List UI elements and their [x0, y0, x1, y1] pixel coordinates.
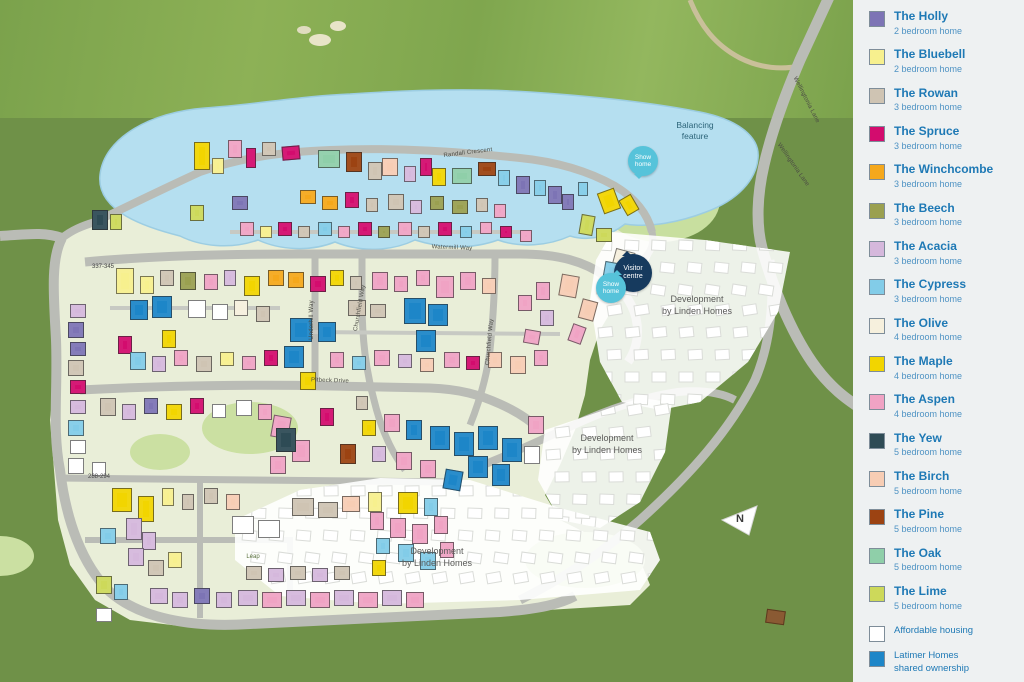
- house-type-bedrooms: 4 bedroom home: [894, 409, 962, 419]
- house-plot: [500, 226, 512, 238]
- legend-item-the-olive: The Olive4 bedroom home: [869, 317, 1016, 355]
- house-plot: [398, 222, 412, 236]
- house-plot: [520, 230, 532, 242]
- house-plot: [432, 168, 446, 186]
- house-type-name: The Rowan: [894, 87, 962, 101]
- house-plot: [150, 588, 168, 604]
- house-plot: [116, 268, 134, 294]
- house-plot: [260, 226, 272, 238]
- house-plot: [262, 142, 276, 156]
- house-type-name: The Pine: [894, 508, 962, 522]
- house-plot: [68, 322, 84, 338]
- house-plot: [330, 270, 344, 286]
- house-plot: [372, 272, 388, 290]
- house-plot: [268, 568, 284, 582]
- development-label-2: Development by Linden Homes: [572, 432, 642, 456]
- legend-swatch: [869, 241, 885, 257]
- house-plot: [356, 396, 368, 410]
- house-plot: [510, 356, 526, 374]
- house-type-name: The Maple: [894, 355, 962, 369]
- house-plot: [196, 356, 212, 372]
- legend-swatch: [869, 126, 885, 142]
- legend-item-the-spruce: The Spruce3 bedroom home: [869, 125, 1016, 163]
- house-plot: [518, 295, 532, 311]
- house-plot: [162, 488, 174, 506]
- house-plot: [112, 488, 132, 512]
- house-plot: [174, 350, 188, 366]
- house-plot: [420, 460, 436, 478]
- house-plot: [366, 198, 378, 212]
- house-plot: [428, 304, 448, 326]
- house-plot: [478, 426, 498, 450]
- house-type-name: The Yew: [894, 432, 962, 446]
- house-plot: [412, 524, 428, 544]
- house-type-bedrooms: 5 bedroom home: [894, 524, 962, 534]
- plot-range-label-bottom: 288-294: [88, 474, 110, 480]
- house-plot: [536, 282, 550, 300]
- street-label-pitbeck-drive: Pitbeck Drive: [311, 377, 349, 384]
- house-plot: [410, 200, 422, 214]
- house-plot: [144, 398, 158, 414]
- house-type-name: The Bluebell: [894, 48, 965, 62]
- leap-label: Leap: [246, 554, 259, 560]
- house-plot: [70, 380, 86, 394]
- legend-swatch: [869, 279, 885, 295]
- house-plot: [70, 342, 86, 356]
- house-plot: [340, 444, 356, 464]
- house-plot: [370, 512, 384, 530]
- house-plot: [372, 560, 386, 576]
- house-plot: [70, 304, 86, 318]
- house-plot: [298, 226, 310, 238]
- house-plot: [548, 186, 562, 204]
- legend-item-the-holly: The Holly2 bedroom home: [869, 10, 1016, 48]
- house-plot: [372, 446, 386, 462]
- house-plot: [96, 608, 112, 622]
- house-plot: [142, 532, 156, 550]
- house-plot: [418, 226, 430, 238]
- legend-panel: The Holly2 bedroom homeThe Bluebell2 bed…: [853, 0, 1024, 682]
- house-plot: [122, 404, 136, 420]
- legend-swatch: [869, 164, 885, 180]
- house-plot: [276, 428, 296, 452]
- legend-swatch: [869, 433, 885, 449]
- legend-item-latimer-shared-ownership: Latimer Homesshared ownership: [869, 650, 1016, 676]
- house-plot: [318, 150, 340, 168]
- house-plot: [430, 426, 450, 450]
- legend-item-the-lime: The Lime5 bedroom home: [869, 585, 1016, 623]
- house-plot: [300, 190, 316, 204]
- house-plot: [258, 404, 272, 420]
- house-plot: [204, 274, 218, 290]
- house-plot: [226, 494, 240, 510]
- house-plot: [190, 398, 204, 414]
- house-plot: [160, 270, 174, 286]
- house-plot: [96, 576, 112, 594]
- legend-item-the-birch: The Birch5 bedroom home: [869, 470, 1016, 508]
- house-plot: [368, 492, 382, 512]
- house-plot: [376, 538, 390, 554]
- house-plot: [194, 142, 210, 170]
- house-plot: [524, 446, 540, 464]
- house-plot: [268, 270, 284, 286]
- house-plot: [68, 458, 84, 474]
- house-plot: [502, 438, 522, 462]
- affordable-housing-label: Affordable housing: [894, 625, 973, 638]
- house-plot: [480, 222, 492, 234]
- house-plot: [262, 592, 282, 608]
- house-plot: [68, 360, 84, 376]
- house-plot: [278, 222, 292, 236]
- legend-swatch: [869, 356, 885, 372]
- house-plot: [430, 196, 444, 210]
- house-plot: [318, 322, 336, 342]
- house-plot: [370, 304, 386, 318]
- legend-item-the-rowan: The Rowan3 bedroom home: [869, 87, 1016, 125]
- house-plot: [238, 590, 258, 606]
- house-plot: [388, 194, 404, 210]
- house-plot: [396, 452, 412, 470]
- house-plot: [152, 356, 166, 372]
- house-plot: [194, 588, 210, 604]
- house-plot: [528, 416, 544, 434]
- house-plot: [100, 398, 116, 416]
- house-plot: [442, 469, 463, 492]
- house-plot: [318, 222, 332, 236]
- house-plot: [130, 300, 148, 320]
- sand-bunker: [297, 26, 311, 34]
- house-plot: [406, 592, 424, 608]
- development-label-1: Development by Linden Homes: [662, 293, 732, 317]
- house-plot: [286, 590, 306, 606]
- house-plot: [70, 400, 86, 414]
- house-type-name: The Beech: [894, 202, 962, 216]
- house-plot: [424, 498, 438, 516]
- house-plot: [130, 352, 146, 370]
- house-plot: [342, 496, 360, 512]
- house-plot: [482, 278, 496, 294]
- house-type-name: The Winchcombe: [894, 163, 993, 177]
- house-plot: [284, 346, 304, 368]
- house-type-name: The Holly: [894, 10, 962, 24]
- house-plot: [384, 414, 400, 432]
- house-plot: [166, 404, 182, 420]
- house-plot: [242, 356, 256, 370]
- house-plot: [534, 180, 546, 196]
- street-label-underhill-way: Underhill Way: [309, 300, 315, 340]
- house-plot: [70, 440, 86, 454]
- house-plot: [180, 272, 196, 290]
- house-plot: [382, 590, 402, 606]
- house-plot: [406, 420, 422, 440]
- legend-swatch: [869, 88, 885, 104]
- house-type-name: The Lime: [894, 585, 962, 599]
- house-plot: [240, 222, 254, 236]
- house-type-bedrooms: 3 bedroom home: [894, 141, 962, 151]
- house-type-bedrooms: 5 bedroom home: [894, 562, 962, 572]
- house-plot: [468, 456, 488, 478]
- green-space-leap: [0, 536, 34, 576]
- legend-item-the-maple: The Maple4 bedroom home: [869, 355, 1016, 393]
- house-type-name: The Spruce: [894, 125, 962, 139]
- house-plot: [162, 330, 176, 348]
- house-plot: [224, 270, 236, 286]
- house-plot: [492, 464, 510, 486]
- house-type-name: The Acacia: [894, 240, 962, 254]
- legend-swatch: [869, 471, 885, 487]
- legend-item-the-aspen: The Aspen4 bedroom home: [869, 393, 1016, 431]
- farm-building: [765, 609, 786, 626]
- legend-swatch: [869, 586, 885, 602]
- house-plot: [498, 170, 510, 186]
- house-plot: [292, 498, 314, 516]
- legend-item-the-acacia: The Acacia3 bedroom home: [869, 240, 1016, 278]
- house-plot: [345, 192, 359, 208]
- sand-bunker: [330, 21, 346, 31]
- legend-swatch: [869, 11, 885, 27]
- house-plot: [398, 354, 412, 368]
- house-plot: [358, 222, 372, 236]
- house-plot: [234, 300, 248, 316]
- house-type-name: The Aspen: [894, 393, 962, 407]
- house-plot: [420, 158, 432, 176]
- house-type-bedrooms: 4 bedroom home: [894, 371, 962, 381]
- house-plot: [420, 358, 434, 372]
- green-space: [130, 434, 190, 470]
- house-plot: [310, 276, 326, 292]
- house-plot: [318, 502, 338, 518]
- house-plot: [312, 568, 328, 582]
- house-plot: [168, 552, 182, 568]
- house-plot: [352, 356, 366, 370]
- house-plot: [466, 356, 480, 370]
- legend-swatch: [869, 509, 885, 525]
- north-label: N: [736, 513, 744, 525]
- marker-tail: [622, 246, 632, 256]
- legend-swatch: [869, 651, 885, 667]
- house-type-name: The Olive: [894, 317, 962, 331]
- house-plot: [212, 304, 228, 320]
- house-plot: [438, 222, 452, 236]
- house-plot: [320, 408, 334, 426]
- house-type-bedrooms: 3 bedroom home: [894, 294, 966, 304]
- house-type-bedrooms: 5 bedroom home: [894, 486, 962, 496]
- house-plot: [494, 204, 506, 218]
- legend-item-the-pine: The Pine5 bedroom home: [869, 508, 1016, 546]
- house-plot: [128, 548, 144, 566]
- house-plot: [232, 196, 248, 210]
- house-type-name: The Oak: [894, 547, 962, 561]
- legend-swatch: [869, 49, 885, 65]
- golf-path: [690, 0, 800, 68]
- show-home-marker-1[interactable]: Show home: [628, 146, 658, 176]
- house-plot: [596, 228, 612, 242]
- house-plot: [390, 518, 406, 538]
- house-type-bedrooms: 2 bedroom home: [894, 26, 962, 36]
- legend-swatch: [869, 626, 885, 642]
- legend-item-the-beech: The Beech3 bedroom home: [869, 202, 1016, 240]
- legend-swatch: [869, 203, 885, 219]
- house-plot: [114, 584, 128, 600]
- house-plot: [190, 205, 204, 221]
- house-plot: [334, 590, 354, 606]
- balancing-feature-label: Balancing feature: [676, 120, 713, 142]
- house-plot: [562, 194, 574, 210]
- house-plot: [398, 492, 418, 514]
- house-plot: [290, 566, 306, 580]
- house-type-bedrooms: 5 bedroom home: [894, 601, 962, 611]
- house-plot: [362, 420, 376, 436]
- house-plot: [322, 196, 338, 210]
- marker-tail: [634, 174, 644, 184]
- house-plot: [232, 516, 254, 534]
- house-plot: [436, 276, 454, 298]
- house-plot: [244, 276, 260, 296]
- house-type-bedrooms: 3 bedroom home: [894, 256, 962, 266]
- site-map[interactable]: Randall CrescentWatermill WayUnderhill W…: [0, 0, 853, 682]
- house-plot: [246, 566, 262, 580]
- house-plot: [416, 270, 430, 286]
- house-plot: [334, 566, 350, 580]
- house-plot: [578, 182, 588, 196]
- house-plot: [281, 145, 300, 161]
- show-home-marker-2[interactable]: Show home: [596, 273, 626, 303]
- house-type-name: The Birch: [894, 470, 962, 484]
- house-type-bedrooms: 2 bedroom home: [894, 64, 965, 74]
- house-plot: [434, 516, 448, 534]
- house-plot: [258, 520, 280, 538]
- house-plot: [478, 162, 496, 176]
- house-plot: [264, 350, 278, 366]
- house-plot: [404, 298, 426, 324]
- house-plot: [452, 200, 468, 214]
- house-plot: [523, 329, 541, 346]
- house-plot: [460, 226, 472, 238]
- house-plot: [100, 528, 116, 544]
- legend-swatch: [869, 318, 885, 334]
- house-plot: [126, 518, 142, 540]
- house-plot: [444, 352, 460, 368]
- house-type-bedrooms: 3 bedroom home: [894, 217, 962, 227]
- house-plot: [374, 350, 390, 366]
- house-plot: [270, 456, 286, 474]
- house-plot: [452, 168, 472, 184]
- house-plot: [152, 296, 172, 318]
- house-plot: [330, 352, 344, 368]
- house-type-bedrooms: 4 bedroom home: [894, 332, 962, 342]
- development-label-3: Development by Linden Homes: [402, 545, 472, 569]
- house-plot: [540, 310, 554, 326]
- house-plot: [460, 272, 476, 290]
- house-plot: [476, 198, 488, 212]
- legend-swatch: [869, 394, 885, 410]
- house-plot: [288, 272, 304, 288]
- house-type-bedrooms: 3 bedroom home: [894, 179, 993, 189]
- house-plot: [236, 400, 252, 416]
- site-plan-page: Randall CrescentWatermill WayUnderhill W…: [0, 0, 1024, 682]
- legend-item-the-bluebell: The Bluebell2 bedroom home: [869, 48, 1016, 86]
- house-plot: [172, 592, 188, 608]
- house-plot: [378, 226, 390, 238]
- house-plot: [394, 276, 408, 292]
- legend-item-the-oak: The Oak5 bedroom home: [869, 547, 1016, 585]
- house-plot: [220, 352, 234, 366]
- house-plot: [188, 300, 206, 318]
- plot-range-label-top: 337-345: [92, 264, 114, 270]
- house-plot: [212, 404, 226, 418]
- house-type-bedrooms: 5 bedroom home: [894, 447, 962, 457]
- house-plot: [68, 420, 84, 436]
- house-plot: [454, 432, 474, 456]
- sand-bunker: [309, 34, 331, 46]
- house-plot: [516, 176, 530, 194]
- house-plot: [92, 210, 108, 230]
- house-plot: [558, 274, 580, 299]
- house-plot: [246, 148, 256, 168]
- house-plot: [382, 158, 398, 176]
- house-plot: [204, 488, 218, 504]
- house-plot: [416, 330, 436, 352]
- house-plot: [216, 592, 232, 608]
- house-type-name: The Cypress: [894, 278, 966, 292]
- legend-item-the-winchcombe: The Winchcombe3 bedroom home: [869, 163, 1016, 201]
- house-plot: [228, 140, 242, 158]
- house-plot: [338, 226, 350, 238]
- house-type-bedrooms: 3 bedroom home: [894, 102, 962, 112]
- house-plot: [404, 166, 416, 182]
- house-plot: [140, 276, 154, 294]
- house-plot: [212, 158, 224, 174]
- house-plot: [358, 592, 378, 608]
- house-plot: [110, 214, 122, 230]
- house-plot: [310, 592, 330, 608]
- house-plot: [368, 162, 382, 180]
- house-plot: [534, 350, 548, 366]
- legend-item-the-cypress: The Cypress3 bedroom home: [869, 278, 1016, 316]
- marker-tail: [612, 265, 622, 275]
- legend-item-the-yew: The Yew5 bedroom home: [869, 432, 1016, 470]
- house-plot: [346, 152, 362, 172]
- house-plot: [256, 306, 270, 322]
- house-plot: [148, 560, 164, 576]
- legend-item-affordable-housing: Affordable housing: [869, 625, 1016, 642]
- legend-swatch: [869, 548, 885, 564]
- latimer-label: Latimer Homesshared ownership: [894, 650, 969, 676]
- house-plot: [182, 494, 194, 510]
